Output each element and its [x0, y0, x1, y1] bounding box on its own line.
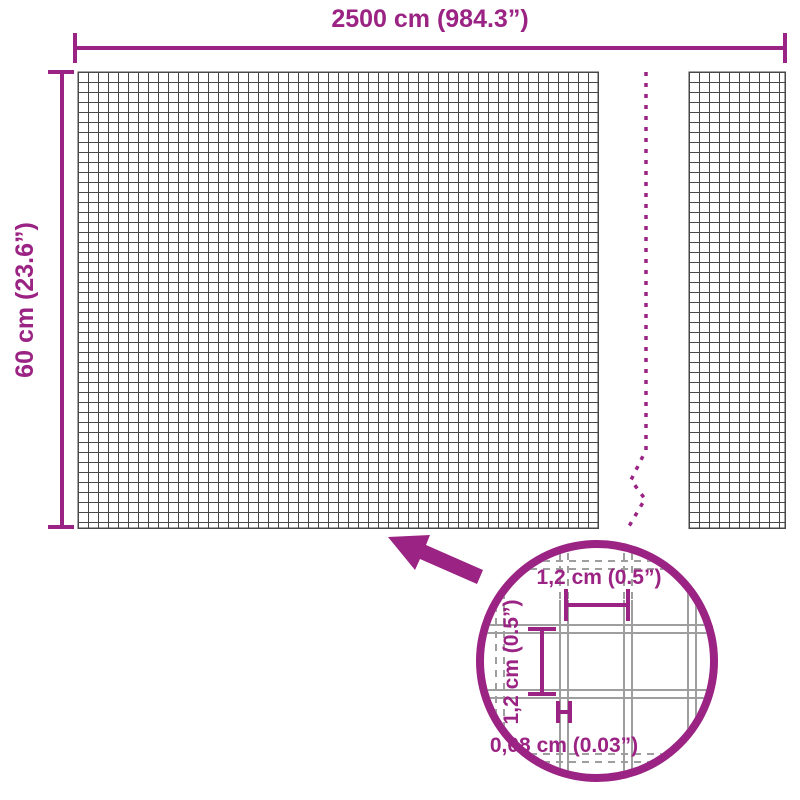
main-mesh-panel [78, 72, 598, 528]
height-dimension [48, 72, 74, 527]
mesh-break-line [628, 72, 646, 528]
wire-thickness-label: 0,08 cm (0.03”) [490, 734, 638, 757]
opening-width-label: 1,2 cm (0.5”) [537, 566, 662, 589]
detail-arrow [388, 535, 483, 584]
width-dimension [75, 33, 785, 63]
right-mesh-grid [689, 72, 785, 528]
product-dimension-diagram: 2500 cm (984.3”) 60 cm (23.6”) [0, 0, 800, 800]
detail-circle-group: 1,2 cm (0.5”) 1,2 cm (0.5”) 0,08 cm (0.0… [478, 540, 716, 782]
main-mesh-grid [78, 72, 598, 528]
diagram-canvas: 2500 cm (984.3”) 60 cm (23.6”) [0, 0, 800, 800]
opening-height-label: 1,2 cm (0.5”) [500, 600, 523, 725]
right-mesh-panel [689, 72, 785, 528]
width-dimension-label: 2500 cm (984.3”) [331, 5, 528, 33]
height-dimension-label: 60 cm (23.6”) [11, 222, 39, 378]
